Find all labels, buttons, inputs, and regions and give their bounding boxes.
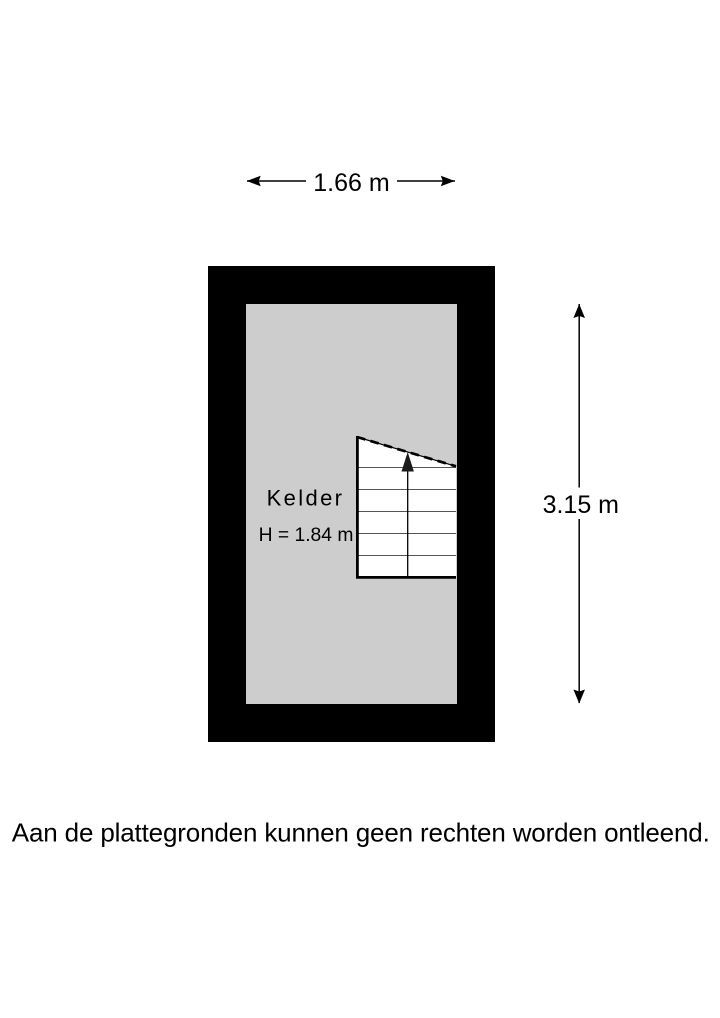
svg-text:3.15 m: 3.15 m [543, 491, 619, 519]
svg-text:Kelder: Kelder [267, 486, 345, 511]
svg-text:1.66 m: 1.66 m [313, 169, 389, 197]
svg-text:Aan de plattegronden kunnen ge: Aan de plattegronden kunnen geen rechten… [12, 818, 710, 848]
svg-text:H = 1.84 m: H = 1.84 m [259, 525, 354, 546]
